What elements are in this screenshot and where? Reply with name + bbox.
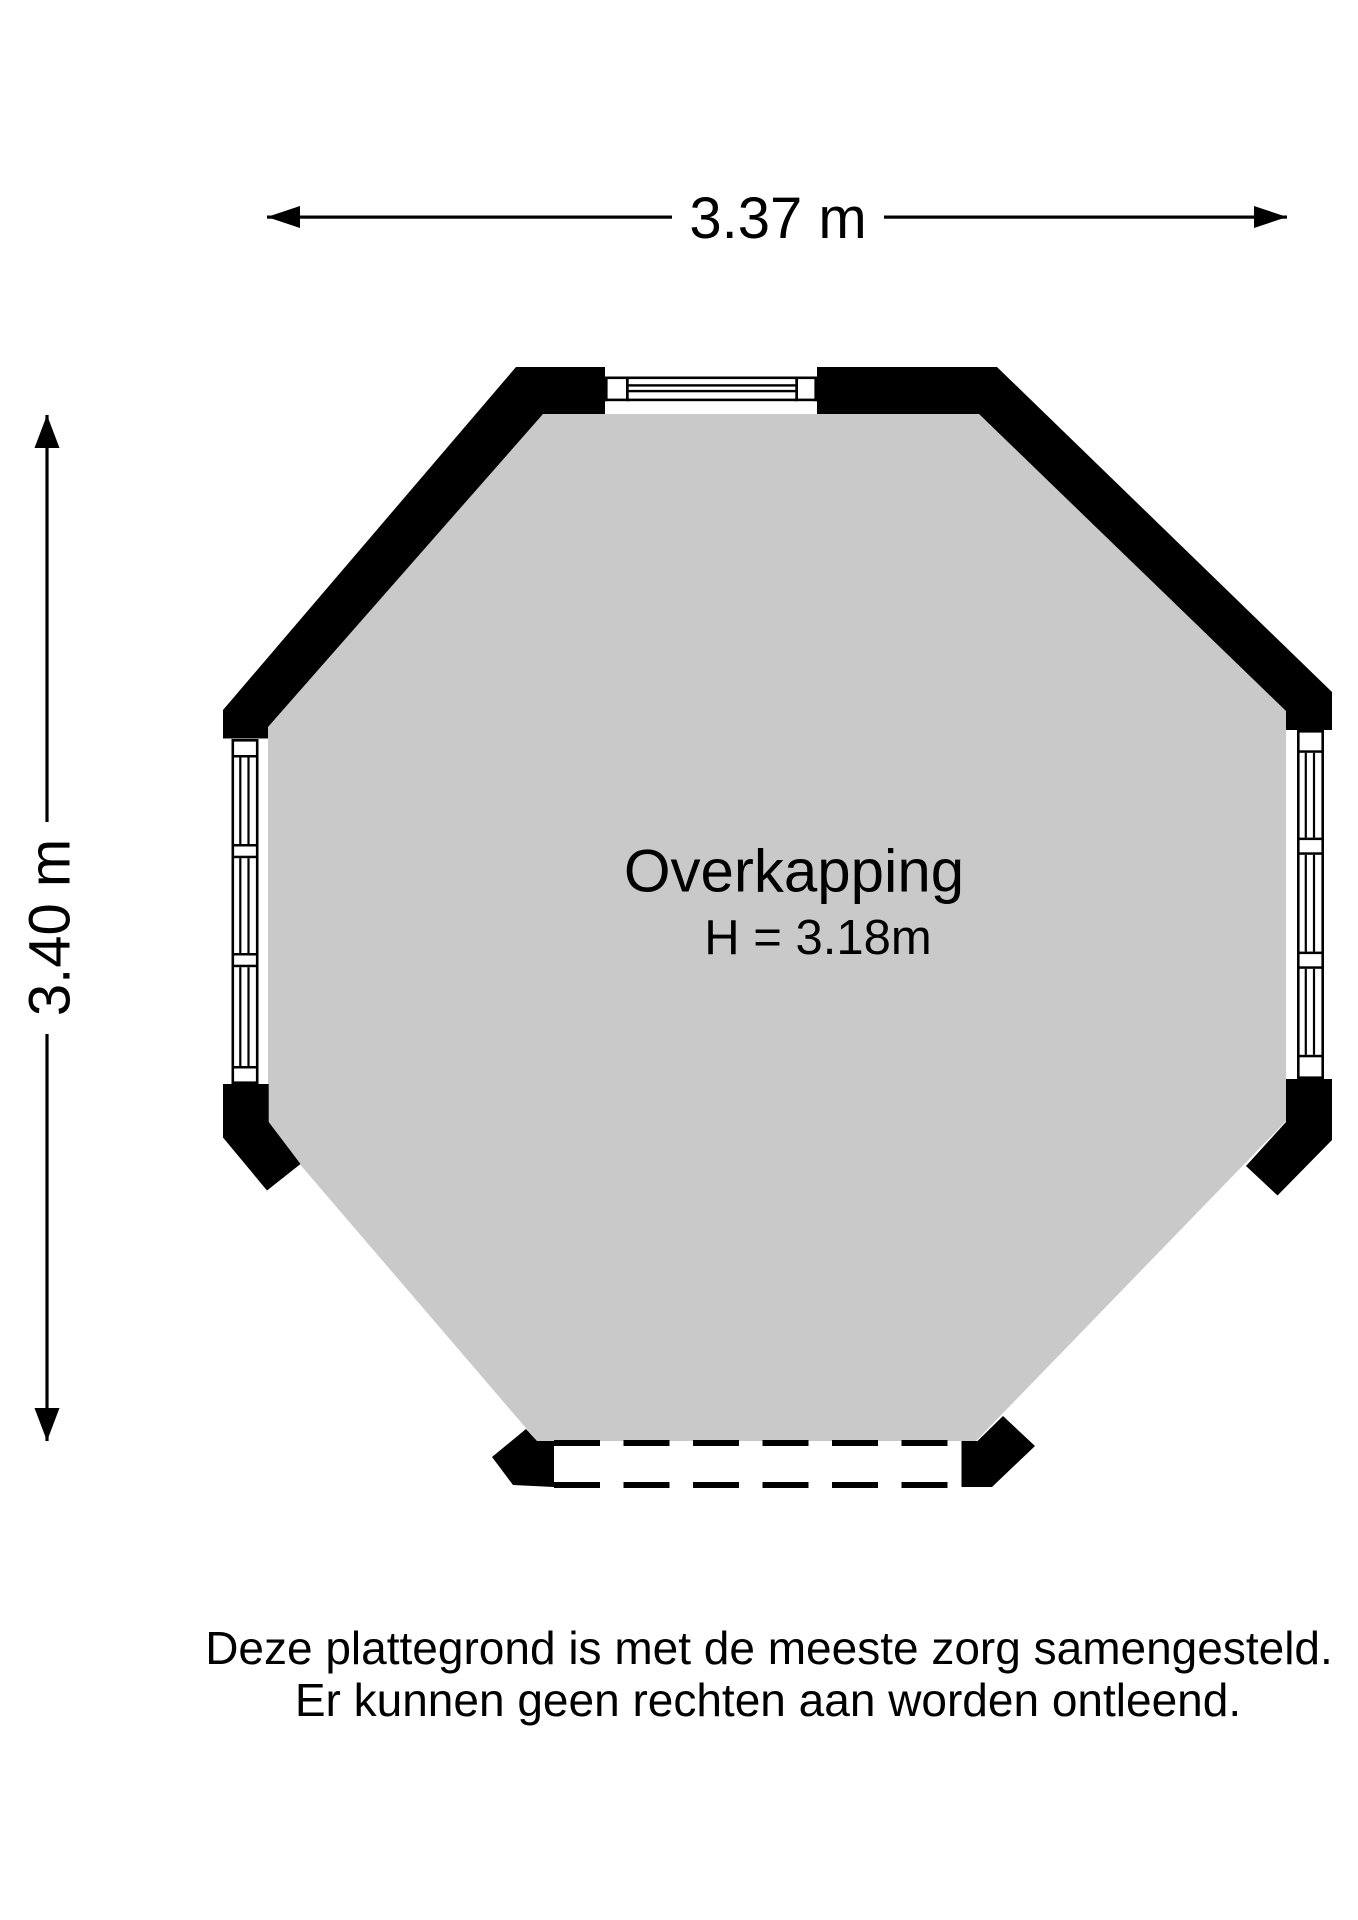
svg-text:Overkapping: Overkapping (624, 838, 964, 905)
svg-text:3.37 m: 3.37 m (689, 186, 866, 251)
svg-text:Er kunnen geen rechten aan wor: Er kunnen geen rechten aan worden ontlee… (295, 1674, 1241, 1726)
svg-text:Deze plattegrond is met de mee: Deze plattegrond is met de meeste zorg s… (205, 1622, 1333, 1674)
svg-text:3.40 m: 3.40 m (18, 839, 83, 1016)
svg-text:H = 3.18m: H = 3.18m (704, 911, 931, 965)
